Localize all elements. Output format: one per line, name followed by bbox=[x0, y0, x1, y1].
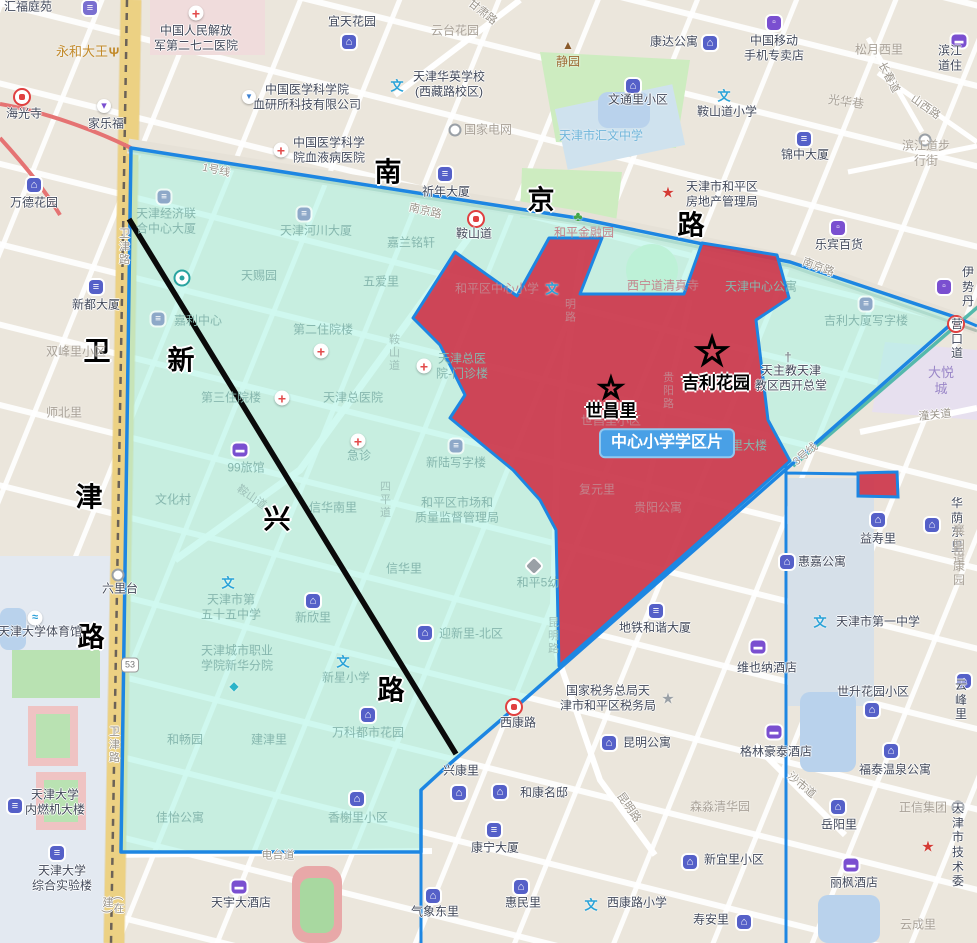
map-label: 吉利大厦写字楼 bbox=[824, 314, 908, 329]
map-label: 嘉利中心 bbox=[174, 314, 222, 329]
school-icon bbox=[717, 90, 730, 103]
map-label: 明路 bbox=[564, 298, 575, 324]
map-label: 急诊 bbox=[347, 449, 371, 464]
starred-icon bbox=[661, 186, 674, 201]
map-label: 贵阳公寓 bbox=[634, 501, 682, 516]
map-label: 第三住院楼 bbox=[201, 391, 261, 406]
road-name-overlay: 京 bbox=[528, 185, 555, 218]
school-icon bbox=[584, 899, 597, 912]
map-label: 中国医学科学 院血液病医院 bbox=[293, 135, 365, 164]
bed-icon bbox=[952, 35, 967, 48]
metro-icon bbox=[947, 315, 965, 333]
map-label: 53 bbox=[121, 658, 139, 673]
cross-icon bbox=[275, 391, 290, 406]
road-name-overlay: 新 bbox=[168, 345, 195, 378]
map-label: 和康名邸 bbox=[520, 786, 568, 801]
bldg-icon bbox=[50, 846, 64, 860]
map-label: 寿安里 bbox=[693, 913, 729, 928]
map-label: 新星小学 bbox=[322, 671, 370, 686]
circ-icon bbox=[952, 801, 965, 814]
home-icon bbox=[737, 915, 751, 929]
stargray-icon bbox=[661, 692, 674, 707]
circ-icon bbox=[919, 134, 932, 147]
home-icon bbox=[361, 708, 375, 722]
map-label: 丽枫酒店 bbox=[830, 876, 878, 891]
map-label: 格林豪泰酒店 bbox=[740, 745, 812, 760]
map-label: 世昌里小区 bbox=[581, 414, 641, 429]
map-label: 师北里 bbox=[46, 406, 82, 421]
bldg-icon bbox=[438, 167, 452, 181]
shopbag-icon bbox=[767, 16, 781, 30]
map-label: 营口道 bbox=[947, 317, 967, 361]
map-label: 天津经济联 合中心大厦 bbox=[136, 206, 196, 235]
cart-icon bbox=[97, 99, 111, 113]
map-label: 四平道 bbox=[379, 481, 390, 520]
map-label: 锦中大厦 bbox=[781, 148, 829, 163]
map-labels-layer: 汇福庭苑永和大王中国人民解放 军第二七二医院海光寺家乐福中国医学科学院 血研所科… bbox=[0, 0, 977, 943]
map-label: 佳怡公寓 bbox=[156, 811, 204, 826]
cross-icon bbox=[351, 434, 366, 449]
map-label: 滨江道住 bbox=[937, 43, 964, 72]
map-label: 吉利花园 bbox=[682, 374, 750, 395]
map-label: 沙市道 bbox=[784, 770, 818, 801]
map-label: 维也纳酒店 bbox=[737, 661, 797, 676]
map-label: 双峰里小区 bbox=[46, 345, 106, 360]
map-label: 云峰里 bbox=[953, 678, 969, 722]
home-icon bbox=[342, 35, 356, 49]
bldgdim-icon bbox=[860, 298, 873, 311]
bldgdim-icon bbox=[298, 208, 311, 221]
map-label: 天津大学 内燃机大楼 bbox=[25, 787, 85, 816]
mobile-icon bbox=[174, 270, 191, 287]
map-label: 南京路 bbox=[800, 256, 836, 280]
home-icon bbox=[780, 555, 794, 569]
map-label: 伊势丹 bbox=[962, 265, 974, 309]
map-label: 汇福庭苑 bbox=[4, 0, 52, 14]
map-label: 中国医学科学院 血研所科技有限公司 bbox=[253, 82, 361, 111]
map-label: 祈年大厦 bbox=[422, 185, 470, 200]
home-icon bbox=[514, 880, 528, 894]
cap-icon bbox=[229, 680, 238, 692]
map-label: 新欣里 bbox=[295, 611, 331, 626]
map-label: 天津总医 院-门诊楼 bbox=[436, 351, 488, 380]
bed-icon bbox=[751, 641, 766, 654]
bed-icon bbox=[232, 881, 247, 894]
home-icon bbox=[831, 800, 845, 814]
map-label: 天宇大酒店 bbox=[211, 896, 271, 911]
road-name-overlay: 路 bbox=[678, 210, 705, 243]
map-viewport[interactable]: 汇福庭苑永和大王中国人民解放 军第二七二医院海光寺家乐福中国医学科学院 血研所科… bbox=[0, 0, 977, 943]
home-icon bbox=[602, 736, 616, 750]
map-label: 森淼清华园 bbox=[690, 800, 750, 815]
map-label: 长春道 bbox=[874, 60, 901, 95]
map-label: 天津华英学校 (西藏路校区) bbox=[413, 69, 485, 98]
map-label: 中国移动 手机专卖店 bbox=[744, 33, 804, 62]
home-icon bbox=[925, 518, 939, 532]
map-label: 甘肃路 bbox=[465, 0, 499, 28]
map-label: 昆明路 bbox=[547, 617, 558, 656]
map-label: 鞍山道 bbox=[456, 227, 492, 242]
map-label: 静园 bbox=[556, 55, 580, 70]
map-label: 信华南里 bbox=[309, 501, 357, 516]
bldgdim-icon bbox=[158, 191, 171, 204]
road-name-overlay: 路 bbox=[78, 622, 105, 655]
swim-icon bbox=[28, 611, 43, 626]
bed-icon bbox=[844, 859, 859, 872]
home-icon bbox=[306, 594, 320, 608]
home-icon bbox=[865, 703, 879, 717]
map-label: 99旅馆 bbox=[227, 461, 264, 476]
school-icon bbox=[545, 283, 558, 296]
home-icon bbox=[626, 79, 640, 93]
tree-icon bbox=[573, 209, 582, 223]
map-label: 信华里 bbox=[386, 562, 422, 577]
road-name-overlay: 路 bbox=[378, 675, 405, 708]
map-label: 云台花园 bbox=[431, 24, 479, 39]
bldg-icon bbox=[487, 823, 501, 837]
cross-icon bbox=[274, 143, 289, 158]
bank-icon bbox=[83, 1, 97, 15]
bldg-icon bbox=[797, 132, 811, 146]
map-label: 光华巷 bbox=[827, 92, 865, 111]
map-label: 滨江道步行街 bbox=[901, 138, 952, 167]
map-label: 新陆写字楼 bbox=[426, 456, 486, 471]
map-label: 兴康里 bbox=[443, 764, 479, 779]
map-label: 乐宾百货 bbox=[815, 238, 863, 253]
map-label: 正信集团 bbox=[899, 801, 947, 816]
map-label: 迎新里-北区 bbox=[439, 627, 503, 642]
map-label: 和平区市场和 质量监督管理局 bbox=[415, 495, 499, 524]
map-label: 和平金融园 bbox=[554, 226, 614, 241]
home-icon bbox=[350, 792, 364, 806]
map-label: 宜天花园 bbox=[328, 15, 376, 30]
fork-icon bbox=[109, 46, 120, 59]
bed-icon bbox=[767, 726, 782, 739]
map-label: 南京路 bbox=[407, 202, 442, 222]
school-icon bbox=[336, 656, 349, 669]
school-icon bbox=[390, 80, 403, 93]
home-icon bbox=[418, 626, 432, 640]
temple-icon bbox=[562, 39, 574, 51]
home-icon bbox=[27, 178, 41, 192]
map-label: 气象东里 bbox=[411, 905, 459, 920]
map-label: 和畅园 bbox=[167, 733, 203, 748]
home-icon bbox=[871, 513, 885, 527]
map-label: 松月西里 bbox=[855, 43, 903, 58]
bldg-icon bbox=[89, 280, 103, 294]
bed-icon bbox=[233, 444, 248, 457]
map-label: 第二住院楼 bbox=[293, 323, 353, 338]
home-icon bbox=[703, 36, 717, 50]
map-label: 昆明路 bbox=[613, 791, 643, 826]
map-label: 惠民里 bbox=[505, 896, 541, 911]
map-label: 西康路 bbox=[500, 716, 536, 731]
map-label: 鞍山道小学 bbox=[697, 105, 757, 120]
map-label: 鞍山道 bbox=[234, 483, 269, 513]
map-label: 新都大厦 bbox=[72, 298, 120, 313]
metro-icon bbox=[13, 88, 31, 106]
map-label: 永和大王 bbox=[56, 44, 108, 60]
map-label: 天主教天津 教区西开总堂 bbox=[755, 363, 827, 392]
map-label: 潼关道 bbox=[918, 408, 952, 425]
map-label: 云成里 bbox=[900, 918, 936, 933]
shopbag-icon bbox=[831, 221, 845, 235]
star-big-icon bbox=[694, 332, 730, 372]
circ-icon bbox=[449, 124, 462, 137]
map-label: 贵阳路 bbox=[662, 372, 673, 411]
bldgdim-icon bbox=[152, 313, 165, 326]
map-label: 天津中心公寓 bbox=[725, 280, 797, 295]
map-label: 天津大学体育馆 bbox=[0, 625, 82, 640]
map-label: 文通里小区 bbox=[608, 93, 668, 108]
map-label: 天津城市职业 学院新华分院 bbox=[201, 643, 273, 672]
bldg-icon bbox=[8, 799, 22, 813]
map-label: 鞍山道 bbox=[388, 334, 399, 373]
school-icon bbox=[813, 616, 826, 629]
map-label: 天津市汇文中学 bbox=[559, 129, 643, 144]
map-label: 天津市 技术委 bbox=[949, 801, 968, 889]
map-label: 和平5幼 bbox=[517, 576, 560, 591]
map-label: 万科都市花园 bbox=[332, 726, 404, 741]
map-label: 岳阳里 bbox=[821, 818, 857, 833]
home-icon bbox=[493, 785, 507, 799]
map-label: 海光寺 bbox=[6, 107, 42, 122]
map-label: 香榭里小区 bbox=[328, 811, 388, 826]
map-label: 西康路小学 bbox=[607, 896, 667, 911]
map-label: 电台道 bbox=[262, 849, 295, 862]
map-label: 六里台 bbox=[102, 582, 138, 597]
map-label: 嘉兰铭轩 bbox=[387, 236, 435, 251]
map-label: 岳康园 bbox=[950, 544, 968, 588]
home-icon bbox=[426, 889, 440, 903]
flask-icon bbox=[242, 90, 256, 104]
map-label: 襄阳道 bbox=[950, 523, 968, 567]
home-icon bbox=[683, 855, 697, 869]
map-label: 国家税务总局天 津市和平区税务局 bbox=[560, 683, 656, 712]
cross-icon bbox=[417, 359, 432, 374]
metro-icon bbox=[467, 210, 485, 228]
map-label: 康宁大厦 bbox=[471, 841, 519, 856]
map-label: 国家电网 bbox=[464, 123, 512, 138]
map-label: 世昌里大楼 bbox=[707, 439, 767, 454]
map-label: 昆明公寓 bbox=[623, 736, 671, 751]
map-label: 卫津路 bbox=[118, 228, 129, 267]
map-label: 中国人民解放 军第二七二医院 bbox=[154, 23, 238, 52]
map-label: 康达公寓 bbox=[650, 35, 698, 50]
cross-icon bbox=[189, 6, 204, 21]
map-label: 大悦城 bbox=[923, 365, 959, 397]
starred-icon bbox=[921, 840, 934, 855]
map-label: 世昌里 bbox=[586, 402, 637, 423]
map-label: 文化村 bbox=[155, 493, 191, 508]
map-label: 惠嘉公寓 bbox=[798, 555, 846, 570]
map-label: 天津河川大厦 bbox=[280, 224, 352, 239]
road-name-overlay: 南 bbox=[375, 157, 402, 190]
map-label: 益寿里 bbox=[860, 532, 896, 547]
road-name-overlay: 兴 bbox=[264, 504, 291, 537]
map-label: 五爱里 bbox=[363, 275, 399, 290]
map-label: 卫津路 bbox=[108, 726, 119, 765]
map-label: 天津市第 五十五中学 bbox=[201, 592, 261, 621]
school-icon bbox=[221, 577, 234, 590]
map-label: 山西路 bbox=[908, 93, 943, 123]
star-big-icon bbox=[598, 374, 625, 404]
map-label: 和平区中心小学 bbox=[455, 282, 539, 297]
map-label: (在建) bbox=[101, 888, 123, 925]
shopbag-icon bbox=[937, 280, 951, 294]
home-icon bbox=[452, 786, 466, 800]
map-label: 1号线 bbox=[201, 162, 231, 181]
map-label: 地铁和谐大厦 bbox=[619, 621, 691, 636]
home-icon bbox=[957, 674, 971, 688]
map-label: 复元里 bbox=[579, 483, 615, 498]
home-icon bbox=[884, 744, 898, 758]
map-label: 天津总医院 bbox=[323, 391, 383, 406]
map-label: 新宜里小区 bbox=[704, 853, 764, 868]
road-name-overlay: 津 bbox=[76, 482, 103, 515]
map-label: 华荫东里 bbox=[947, 496, 967, 555]
map-label: 天津市第一中学 bbox=[836, 615, 920, 630]
map-label: 建津里 bbox=[251, 733, 287, 748]
map-label: 天津市和平区 房地产管理局 bbox=[686, 179, 758, 208]
metro-icon bbox=[505, 698, 523, 716]
cross-icon bbox=[314, 344, 329, 359]
map-label: 3号线 bbox=[791, 441, 821, 469]
map-label: 福泰温泉公寓 bbox=[859, 763, 931, 778]
map-label: 家乐福 bbox=[88, 117, 124, 132]
bldgdim-icon bbox=[450, 440, 463, 453]
tag-icon bbox=[526, 558, 542, 574]
church-icon bbox=[784, 351, 791, 364]
map-label: 天津大学 综合实验楼 bbox=[32, 863, 92, 892]
road-name-overlay: 卫 bbox=[84, 336, 111, 369]
map-label: 天赐园 bbox=[241, 269, 277, 284]
bldg-icon bbox=[649, 604, 663, 618]
map-label: 西宁道清真寺 bbox=[627, 279, 699, 294]
map-label: 万德花园 bbox=[10, 196, 58, 211]
circ-icon bbox=[112, 569, 125, 582]
map-label: 世升花园小区 bbox=[837, 685, 909, 700]
district-badge: 中心小学学区片 bbox=[599, 428, 735, 458]
